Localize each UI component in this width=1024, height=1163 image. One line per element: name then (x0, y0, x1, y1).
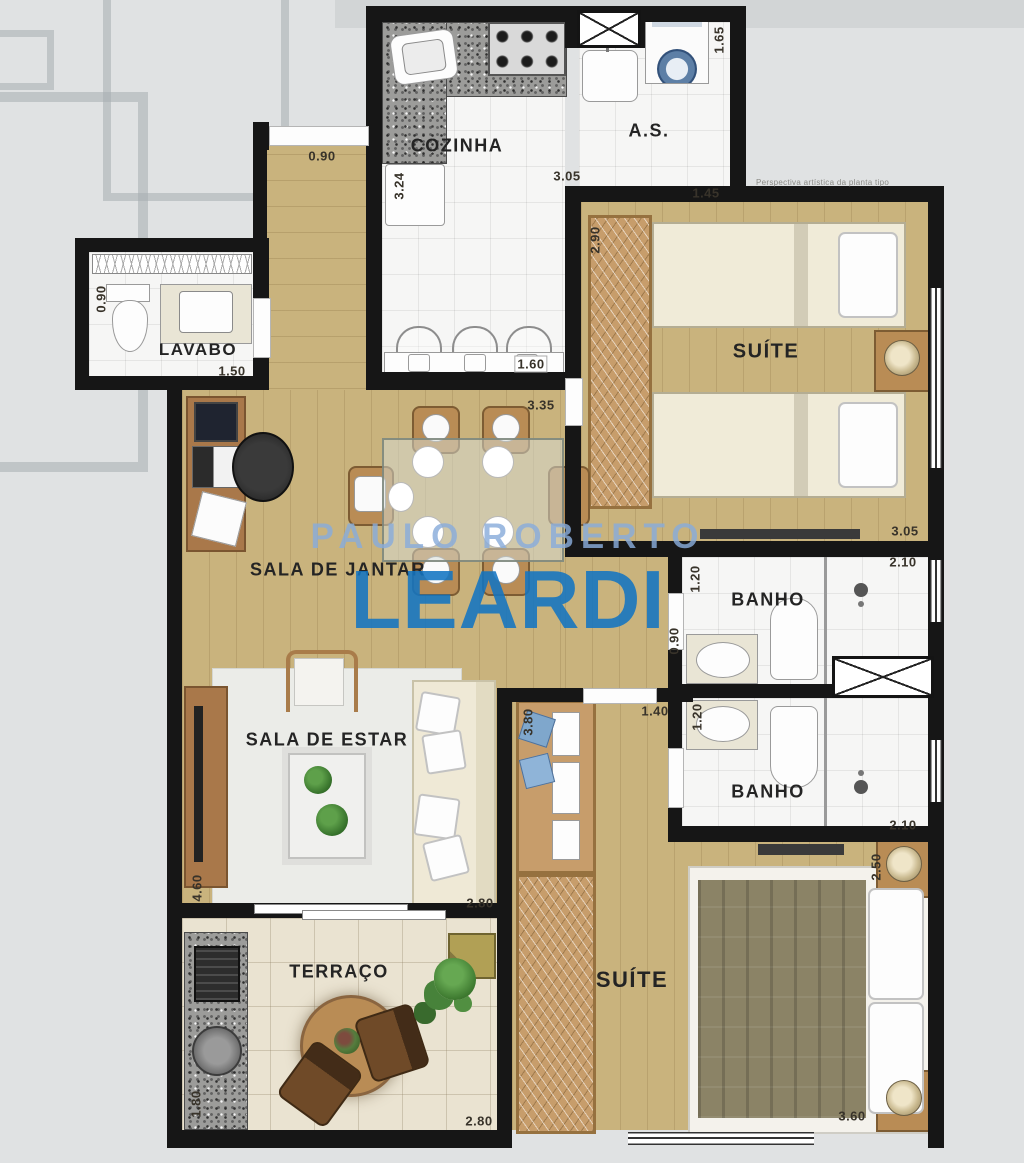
plant (304, 766, 332, 794)
wall-left-outer (167, 390, 182, 1148)
wall-suite1-top (565, 186, 928, 202)
dim-banho2-width: 2.10 (889, 818, 916, 833)
suite2-blanket (698, 880, 866, 1118)
shaft-box (832, 656, 934, 698)
tv-screen (194, 706, 203, 862)
shelf-slot (552, 712, 580, 756)
suite1-lamp (884, 340, 920, 376)
wall-corridor-left (253, 150, 267, 252)
plate (412, 446, 444, 478)
banho2-shower-head (854, 780, 868, 794)
dim-counter-width: 1.60 (514, 356, 547, 373)
wall-kitchen-left (366, 6, 382, 390)
suite2-door (583, 688, 657, 704)
sliding-door-panel (302, 910, 446, 920)
kitchen-sink-basin (401, 38, 447, 76)
suite2-tv-console (758, 844, 844, 855)
suite2-window (628, 1132, 814, 1145)
shelf-slot (552, 762, 580, 814)
wall-suite1-left-upper (565, 202, 581, 378)
terraco-plant (434, 958, 476, 1000)
lavabo-basin (179, 291, 233, 333)
laundry-tank (582, 50, 638, 102)
dim-estar-width: 2.80 (466, 896, 493, 911)
dim-lavabo-width: 1.50 (218, 364, 245, 379)
suite1-tv-console (700, 529, 860, 539)
label-banho1: BANHO (731, 590, 805, 611)
dim-as-height: 1.65 (712, 26, 727, 53)
dim-estar-height: 4.60 (190, 874, 205, 901)
watermark-line1: PAULO ROBERTO (311, 517, 706, 557)
watermark-line2: LEARDI (351, 552, 666, 648)
blanket-fold (794, 224, 808, 326)
dim-suite1-width: 3.05 (891, 524, 918, 539)
stool-seat (408, 354, 430, 372)
banho2-window (930, 740, 942, 802)
lavabo-louver-window (92, 254, 252, 274)
shelf-slot (552, 820, 580, 860)
dim-suite2-width: 3.60 (838, 1109, 865, 1124)
artistic-note: Perspectiva artística da planta tipo (756, 178, 889, 187)
dim-banho1-height: 1.20 (688, 565, 703, 592)
corridor-floor (267, 128, 380, 390)
banho2-door (668, 748, 684, 808)
suite2-pillow (868, 888, 924, 1000)
stool-seat (464, 354, 486, 372)
suite2-lamp (886, 846, 922, 882)
table-centerpiece (334, 1028, 360, 1054)
dim-cozinha-height: 3.24 (392, 172, 407, 199)
suite2-lamp (886, 1080, 922, 1116)
dim-banho2-height: 1.20 (690, 703, 705, 730)
label-terraco: TERRAÇO (289, 962, 389, 983)
dim-terraco-width: 2.80 (465, 1114, 492, 1129)
kitchen-sink (389, 28, 459, 86)
wall-bottom-left-outer (167, 1130, 512, 1148)
wall-estar-right (497, 688, 512, 1148)
terraco-round-sink (192, 1026, 242, 1076)
dim-suite2-height: 3.80 (521, 708, 536, 735)
banho1-window (930, 560, 942, 622)
tv-cabinet (184, 686, 228, 888)
dim-terraco-height: 1.80 (189, 1090, 204, 1117)
decor-square (0, 30, 54, 90)
suite2-wardrobe (516, 874, 596, 1134)
dim-banho1-width: 2.10 (889, 555, 916, 570)
banho1-shower-glass (824, 557, 827, 684)
blanket-fold (794, 394, 808, 496)
wall-as-right (730, 6, 746, 202)
grill (194, 946, 240, 1002)
dim-corridor-width: 0.90 (308, 149, 335, 164)
sofa-back (476, 682, 494, 906)
label-suite2: SUÍTE (596, 967, 668, 993)
sofa-pillow (421, 729, 467, 775)
suite1-window (930, 288, 942, 468)
dim-suite2-right: 2.50 (869, 853, 884, 880)
plate (388, 482, 414, 512)
banho2-shower-glass (824, 698, 827, 826)
lavabo-door (253, 298, 271, 358)
label-cozinha: COZINHA (411, 136, 504, 157)
plant (316, 804, 348, 836)
wall-lavabo-left (75, 238, 89, 390)
dim-suite1-height: 2.90 (588, 226, 603, 253)
suite1-door (565, 378, 583, 426)
office-chair (232, 432, 294, 502)
suite1-wardrobe (588, 215, 652, 509)
wall-entry-stub (253, 122, 269, 150)
banho2-toilet (770, 706, 818, 788)
dim-hall-height: 0.90 (667, 627, 682, 654)
dim-lavabo-height: 0.90 (94, 285, 109, 312)
dim-as-width: 1.45 (692, 186, 719, 201)
lavabo-sink-counter (160, 284, 252, 344)
dim-jantar-width: 3.35 (527, 398, 554, 413)
floor-plan-canvas: COZINHA A.S. LAVABO SUÍTE SALA DE JANTAR… (0, 0, 1024, 1163)
shaft-box (577, 10, 641, 48)
plate (482, 446, 514, 478)
entry-door (269, 126, 369, 146)
suite1-pillow-2 (838, 402, 898, 488)
suite1-pillow-1 (838, 232, 898, 318)
dim-cozinha-width: 3.05 (553, 169, 580, 184)
stove (488, 22, 566, 76)
label-banho2: BANHO (731, 782, 805, 803)
label-suite1: SUÍTE (733, 341, 799, 364)
banho1-sink (696, 642, 750, 678)
banho1-shower-head (854, 583, 868, 597)
label-lavabo: LAVABO (159, 340, 237, 360)
sofa-pillow (413, 793, 460, 840)
label-sala-estar: SALA DE ESTAR (246, 730, 409, 751)
washer-door (657, 49, 697, 84)
desk-monitor (194, 402, 238, 442)
wall-top (366, 6, 746, 22)
wall-lavabo-top (75, 238, 269, 252)
washing-machine (645, 16, 709, 84)
label-area-servico: A.S. (628, 121, 669, 142)
wall-kitchen-bottom (366, 372, 576, 390)
armchair-cushion (294, 658, 344, 706)
dim-suite2-top-width: 1.40 (641, 704, 668, 719)
